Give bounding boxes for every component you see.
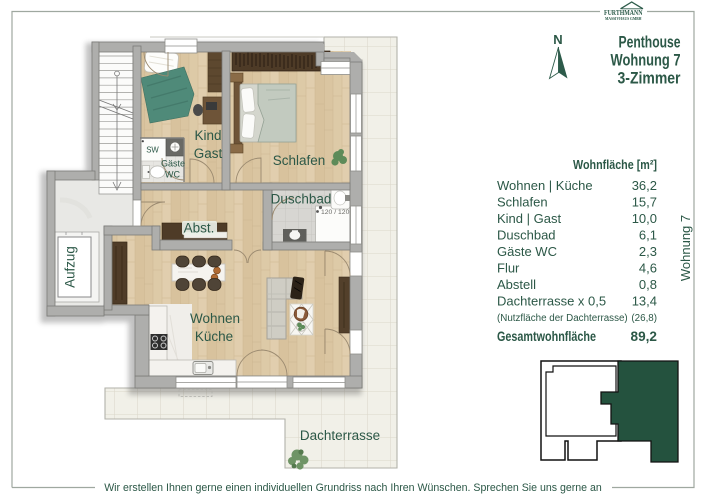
svg-text:13,4: 13,4 bbox=[632, 294, 657, 309]
svg-text:SW: SW bbox=[146, 146, 159, 155]
svg-text:(26,8): (26,8) bbox=[631, 313, 657, 324]
svg-text:WC: WC bbox=[165, 170, 180, 180]
svg-text:Wohnen | Küche: Wohnen | Küche bbox=[497, 178, 593, 193]
svg-text:Abstell: Abstell bbox=[497, 277, 536, 292]
svg-text:Gäste WC: Gäste WC bbox=[497, 244, 557, 259]
svg-text:15,7: 15,7 bbox=[632, 195, 657, 210]
svg-text:Küche: Küche bbox=[195, 329, 233, 344]
svg-text:6,1: 6,1 bbox=[639, 228, 657, 243]
svg-text:Flur: Flur bbox=[497, 261, 520, 276]
svg-text:3-Zimmer: 3-Zimmer bbox=[618, 69, 681, 88]
svg-text:Duschbad: Duschbad bbox=[271, 192, 332, 207]
svg-text:4,6: 4,6 bbox=[639, 261, 657, 276]
svg-text:N: N bbox=[553, 32, 562, 47]
svg-text:Schlafen: Schlafen bbox=[273, 153, 326, 168]
svg-text:Aufzug: Aufzug bbox=[63, 246, 78, 288]
svg-text:Wohnfläche [m²]: Wohnfläche [m²] bbox=[573, 157, 657, 172]
svg-text:Schlafen: Schlafen bbox=[497, 195, 548, 210]
svg-text:0,8: 0,8 bbox=[639, 277, 657, 292]
svg-text:Gesamtwohnfläche: Gesamtwohnfläche bbox=[497, 329, 596, 344]
svg-text:Wir erstellen Ihnen gerne eine: Wir erstellen Ihnen gerne einen individu… bbox=[104, 482, 602, 494]
svg-text:Gäste: Gäste bbox=[161, 159, 185, 169]
svg-text:Kind | Gast: Kind | Gast bbox=[497, 211, 561, 226]
svg-text:MASSIVHAUS GMBH: MASSIVHAUS GMBH bbox=[605, 16, 642, 21]
svg-text:Wohnung 7: Wohnung 7 bbox=[678, 215, 693, 281]
svg-text:Duschbad: Duschbad bbox=[497, 228, 556, 243]
svg-text:Wohnen: Wohnen bbox=[190, 311, 240, 326]
svg-text:Penthouse: Penthouse bbox=[619, 33, 681, 52]
svg-text:Dachterrasse x 0,5: Dachterrasse x 0,5 bbox=[497, 294, 606, 309]
svg-text:Kind: Kind bbox=[194, 128, 221, 143]
svg-text:Abst.: Abst. bbox=[184, 221, 215, 236]
svg-text:Wohnung 7: Wohnung 7 bbox=[611, 51, 681, 70]
svg-text:(Nutzfläche der Dachterrasse): (Nutzfläche der Dachterrasse) bbox=[497, 313, 628, 324]
svg-text:2,3: 2,3 bbox=[639, 244, 657, 259]
svg-text:Dachterrasse: Dachterrasse bbox=[300, 428, 380, 443]
svg-text:Gast: Gast bbox=[194, 146, 223, 161]
svg-text:10,0: 10,0 bbox=[632, 211, 657, 226]
svg-text:36,2: 36,2 bbox=[632, 178, 657, 193]
svg-text:120 / 120: 120 / 120 bbox=[321, 209, 350, 216]
svg-text:89,2: 89,2 bbox=[631, 329, 658, 344]
